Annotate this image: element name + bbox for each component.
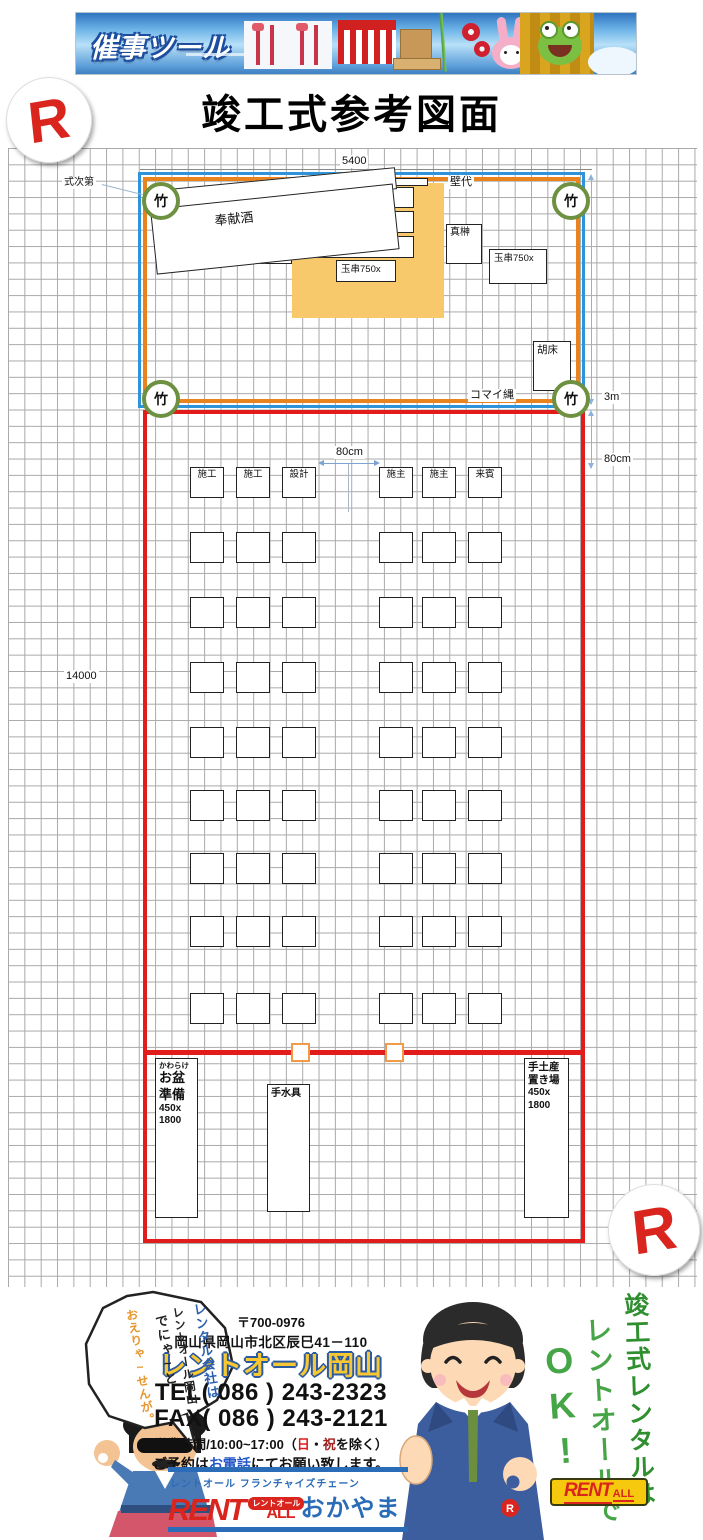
kabeshiro-label: 壁代 [448, 176, 474, 189]
tamagushi-box: 玉串750x [336, 260, 396, 282]
arrowhead-up [588, 174, 594, 180]
station-label: お盆 [159, 1070, 197, 1086]
seat-box [379, 662, 413, 693]
svg-text:R: R [506, 1503, 514, 1515]
seat-box [422, 916, 456, 947]
rentall-small-logo: RENT ALL [550, 1478, 648, 1506]
seat-box: 施工 [236, 467, 270, 498]
okayama-wordmark: おかやま [301, 1488, 401, 1523]
seat-box [422, 597, 456, 628]
station-label: 450x [528, 1087, 568, 1100]
seat-box [282, 790, 316, 821]
business-hours: 営業時間/10:00~17:00（日・祝を除く） [150, 1434, 392, 1453]
frog-mascot-photo [520, 13, 594, 74]
seat-box [282, 597, 316, 628]
seat-box [190, 916, 224, 947]
bamboo-marker: 竹 [552, 380, 590, 418]
bamboo-marker: 竹 [552, 182, 590, 220]
bamboo-marker: 竹 [142, 380, 180, 418]
seat-box [282, 916, 316, 947]
rosette-icon [474, 41, 490, 57]
seat-box [468, 993, 502, 1024]
seat-box [468, 662, 502, 693]
blue-bar [168, 1527, 408, 1532]
seat-box [379, 597, 413, 628]
kawarake-station-box: かわらけ お盆 準備 450x 1800 [155, 1058, 198, 1218]
seat-box [236, 993, 270, 1024]
seat-box [379, 916, 413, 947]
dimension-left-label: 14000 [64, 670, 99, 683]
salaryman-character: R [398, 1292, 548, 1540]
seat-box [379, 790, 413, 821]
station-label: かわらけ [159, 1061, 197, 1070]
masakaki-box: 真榊 [446, 224, 482, 264]
fax-number: FAX( 086 ) 243-2121 [150, 1406, 392, 1432]
event-tools-banner: 催事ツール [75, 12, 637, 75]
seat-box [468, 532, 502, 563]
ceremony-stands-photo [244, 21, 332, 69]
seat-box: 来賓 [468, 467, 502, 498]
seat-box [236, 662, 270, 693]
dimension-80cm-center-label: 80cm [334, 446, 365, 459]
arrowhead-right [374, 460, 380, 466]
rentall-small-rent: RENT [564, 1481, 612, 1504]
rentall-wordmark: RENT [168, 1496, 244, 1524]
dimension-top-label: 5400 [340, 155, 368, 168]
seat-box: 設計 [282, 467, 316, 498]
page-title: 竣工式参考図面 [0, 82, 703, 140]
seat-box [379, 532, 413, 563]
shikishidai-label: 式次第 [62, 177, 96, 189]
wooden-stand-photo [400, 29, 432, 69]
rentall-r-logo: R [6, 77, 92, 163]
entry-marker [291, 1043, 310, 1062]
aisle-center-line [348, 464, 349, 512]
seat-box [422, 993, 456, 1024]
arrowhead-left [318, 460, 324, 466]
seat-box [379, 727, 413, 758]
seat-box [282, 532, 316, 563]
seat-box [282, 993, 316, 1024]
red-white-curtain-photo [338, 20, 396, 64]
station-label: 450x [159, 1103, 197, 1116]
dimension-3m-label: 3m [602, 391, 621, 404]
arrowhead-down [588, 463, 594, 469]
seat-box: 施工 [190, 467, 224, 498]
station-label: 手土産 [528, 1061, 568, 1074]
dimension-line-3m [591, 176, 592, 404]
seat-box [236, 853, 270, 884]
seat-box [379, 853, 413, 884]
seat-box [422, 532, 456, 563]
franchise-logo-block: レントオール フランチャイズチェーン RENT レントオール ALL おかやま [168, 1467, 408, 1532]
station-label: 1800 [528, 1100, 568, 1113]
seat-box [236, 790, 270, 821]
station-label: 手水具 [271, 1088, 301, 1099]
seat-box [190, 727, 224, 758]
seat-box [236, 597, 270, 628]
sunday-mark: 日 [297, 1437, 310, 1452]
banner-title: 催事ツール [90, 26, 230, 65]
bamboo-marker: 竹 [142, 182, 180, 220]
seat-box [422, 662, 456, 693]
temiyage-station-box: 手土産 置き場 450x 1800 [524, 1058, 569, 1218]
station-label: 置き場 [528, 1074, 568, 1087]
seat-box [468, 597, 502, 628]
seat-box [468, 853, 502, 884]
station-label: 準備 [159, 1087, 197, 1103]
dimension-80cm-right-label: 80cm [602, 453, 633, 466]
seat-box [282, 662, 316, 693]
seat-box [379, 993, 413, 1024]
red-divider-line [143, 1050, 585, 1055]
sakaki-branch-photo [429, 12, 457, 72]
seat-box [422, 790, 456, 821]
seat-box [468, 916, 502, 947]
seat-box [282, 853, 316, 884]
rosette-icon [462, 23, 480, 41]
seat-box: 施主 [379, 467, 413, 498]
rentall-small-all: ALL [613, 1488, 634, 1502]
seat-box [190, 993, 224, 1024]
seat-box [190, 662, 224, 693]
seat-box [190, 597, 224, 628]
chouzu-station-box: 手水具 [267, 1084, 310, 1212]
komainawa-label: コマイ縄 [468, 389, 516, 402]
seat-box [422, 727, 456, 758]
seat-box [190, 790, 224, 821]
station-label: 1800 [159, 1115, 197, 1128]
cloud-decoration [588, 47, 637, 75]
dimension-line-80cm-center [322, 463, 376, 464]
seat-box [190, 532, 224, 563]
seat-box [282, 727, 316, 758]
flyer-page: 催事ツール R 竣工式参考図面 5400 竹 竹 竹 竹 式次第 [0, 0, 703, 1540]
seat-box [468, 790, 502, 821]
holiday-mark: 祝 [323, 1437, 336, 1452]
seat-box [236, 727, 270, 758]
arrowhead-up [588, 410, 594, 416]
seat-box [236, 532, 270, 563]
seat-box [190, 853, 224, 884]
dimension-line-80cm-right [591, 412, 592, 468]
seat-box [468, 727, 502, 758]
rentall-r-logo: R [608, 1184, 700, 1276]
seat-box [236, 916, 270, 947]
blue-bar [168, 1467, 408, 1472]
rentall-wordmark-all: ALL [266, 1505, 294, 1523]
seat-box [422, 853, 456, 884]
seat-box: 施主 [422, 467, 456, 498]
tamagushi-box: 玉串750x [489, 249, 547, 284]
entry-marker [385, 1043, 404, 1062]
